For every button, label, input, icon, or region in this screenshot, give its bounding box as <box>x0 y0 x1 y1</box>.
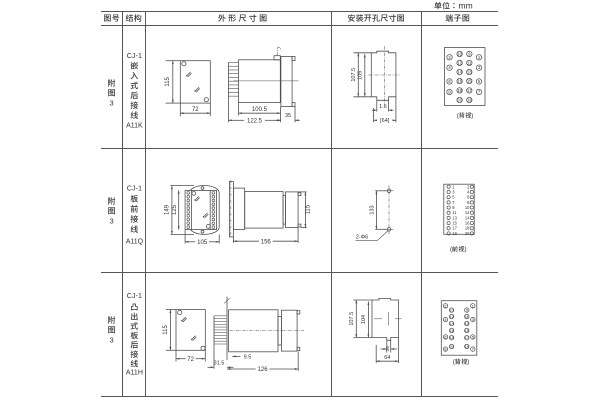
svg-text:19: 19 <box>467 98 472 103</box>
svg-text:64: 64 <box>384 355 390 361</box>
svg-text:11: 11 <box>467 60 472 65</box>
svg-text:107.5: 107.5 <box>349 312 355 326</box>
svg-text:): ) <box>471 112 473 119</box>
svg-text:18: 18 <box>457 88 462 93</box>
svg-text:3: 3 <box>110 336 114 345</box>
svg-text:156: 156 <box>261 239 272 245</box>
svg-text:[64]: [64] <box>380 118 390 124</box>
svg-text:9: 9 <box>466 308 468 313</box>
svg-text:17: 17 <box>467 88 472 93</box>
svg-text:115: 115 <box>165 76 171 86</box>
svg-text:CJ-1: CJ-1 <box>127 183 142 192</box>
svg-text:1.6: 1.6 <box>379 104 387 110</box>
svg-text:149: 149 <box>165 204 171 215</box>
svg-text:115: 115 <box>305 204 311 214</box>
svg-text:13: 13 <box>467 70 472 75</box>
svg-text:A11K: A11K <box>126 123 143 130</box>
svg-text:17: 17 <box>465 335 469 340</box>
svg-text:3: 3 <box>110 99 114 108</box>
svg-text:100.5: 100.5 <box>252 107 268 113</box>
svg-text:8: 8 <box>444 347 446 352</box>
svg-text:115: 115 <box>163 325 169 335</box>
svg-text:105: 105 <box>197 240 208 246</box>
svg-text:16: 16 <box>457 79 462 84</box>
svg-text:104: 104 <box>361 315 367 324</box>
svg-text:3: 3 <box>472 317 474 322</box>
svg-text:15: 15 <box>465 328 469 333</box>
svg-text:CJ-1: CJ-1 <box>127 291 142 300</box>
svg-text:133: 133 <box>369 205 375 214</box>
svg-text:7: 7 <box>472 347 474 352</box>
svg-text:13: 13 <box>465 321 469 326</box>
svg-text:11: 11 <box>465 314 469 319</box>
svg-text:15: 15 <box>467 79 472 84</box>
svg-text:1: 1 <box>472 303 474 308</box>
svg-text:19: 19 <box>452 231 457 236</box>
svg-text:mm: mm <box>459 0 473 10</box>
svg-text:35: 35 <box>285 113 291 119</box>
svg-text:): ) <box>464 246 466 253</box>
svg-text:122.5: 122.5 <box>247 118 263 124</box>
svg-text:9.5: 9.5 <box>244 354 252 360</box>
svg-text:A11Q: A11Q <box>126 239 144 246</box>
svg-text:19: 19 <box>465 344 469 349</box>
svg-text:72: 72 <box>187 357 194 363</box>
svg-text:125: 125 <box>172 204 178 215</box>
svg-text:31.5: 31.5 <box>214 360 225 366</box>
svg-text:107.5: 107.5 <box>351 68 357 82</box>
svg-text:18: 18 <box>449 335 453 340</box>
svg-text:10: 10 <box>457 51 462 56</box>
svg-text:5: 5 <box>472 334 474 339</box>
svg-text:20: 20 <box>465 231 470 236</box>
svg-text:6: 6 <box>444 334 446 339</box>
svg-text:3: 3 <box>110 217 114 226</box>
svg-text:20: 20 <box>457 98 462 103</box>
svg-text:12: 12 <box>449 314 453 319</box>
svg-text:2-Φ6: 2-Φ6 <box>356 234 368 240</box>
svg-text:72: 72 <box>192 107 199 113</box>
svg-text:126: 126 <box>258 367 269 373</box>
svg-text:): ) <box>467 359 469 366</box>
svg-text:16: 16 <box>449 328 453 333</box>
svg-text:105: 105 <box>358 71 364 80</box>
svg-text:2: 2 <box>444 303 446 308</box>
svg-text:12: 12 <box>457 60 462 65</box>
svg-text:CJ-1: CJ-1 <box>127 51 142 60</box>
svg-text:A11H: A11H <box>126 370 143 377</box>
svg-text:14: 14 <box>457 70 462 75</box>
svg-text:16: 16 <box>385 346 391 352</box>
